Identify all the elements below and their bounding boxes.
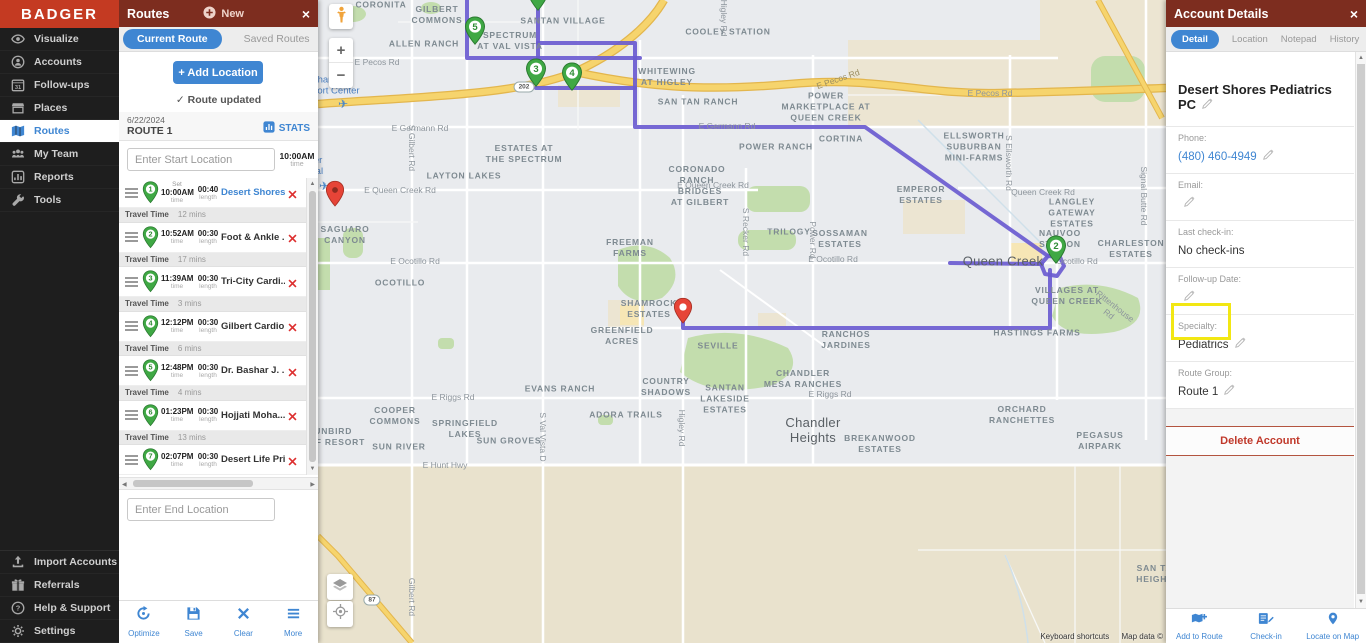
scroll-right-arrow[interactable]: ▶ bbox=[310, 481, 315, 488]
stop-length: 00:30length bbox=[195, 274, 221, 290]
remove-stop-icon[interactable] bbox=[287, 365, 299, 377]
route-stop-row-6: 601:23PMtime00:30lengthHojjati Moha... bbox=[119, 401, 306, 431]
new-route-button[interactable]: New bbox=[203, 6, 244, 22]
stop-length: 00:30length bbox=[195, 318, 221, 334]
route-stop-row-7: 702:07PMtime00:30lengthDesert Life Pri..… bbox=[119, 445, 306, 475]
sidebar-item-label: Help & Support bbox=[34, 602, 110, 614]
sidebar: BADGER VisualizeAccounts31Follow-upsPlac… bbox=[0, 0, 119, 643]
sidebar-item-referrals[interactable]: Referrals bbox=[0, 574, 119, 597]
my-location-control[interactable] bbox=[327, 601, 353, 627]
account-name: Desert Shores Pediatrics PC bbox=[1166, 52, 1354, 127]
travel-time-row: Travel Time6 mins bbox=[119, 342, 306, 357]
remove-stop-icon[interactable] bbox=[287, 454, 299, 466]
sidebar-item-tools[interactable]: Tools bbox=[0, 189, 119, 212]
stop-pin-icon: 3 bbox=[142, 270, 159, 293]
route-info-band: 6/22/2024 ROUTE 1 STATS bbox=[119, 112, 318, 141]
stop-account-link[interactable]: Gilbert Cardio... bbox=[221, 321, 285, 332]
sidebar-item-label: Settings bbox=[34, 625, 75, 637]
drag-handle-icon[interactable] bbox=[125, 408, 138, 422]
scrollbar-thumb[interactable] bbox=[309, 191, 316, 462]
svg-text:6: 6 bbox=[148, 407, 152, 416]
field-label: Specialty: bbox=[1178, 321, 1342, 331]
highway-shield-87: 87 bbox=[363, 595, 380, 606]
drag-handle-icon[interactable] bbox=[125, 364, 138, 378]
field-phone: Phone:(480) 460-4949 bbox=[1166, 127, 1354, 174]
sidebar-nav: VisualizeAccounts31Follow-upsPlacesRoute… bbox=[0, 28, 119, 212]
settings-icon bbox=[11, 624, 25, 638]
map-attribution: Keyboard shortcuts Map data © bbox=[1030, 632, 1163, 641]
stop-list-scrollbar[interactable]: ▲ ▼ bbox=[306, 178, 318, 475]
routes-icon bbox=[11, 124, 25, 138]
reports-icon bbox=[11, 170, 25, 184]
sidebar-item-follow-ups[interactable]: 31Follow-ups bbox=[0, 74, 119, 97]
stop-time: 10:52AMtime bbox=[161, 229, 193, 245]
field-email: Email: bbox=[1166, 174, 1354, 221]
stop-account-link[interactable]: Desert Shores... bbox=[221, 187, 285, 198]
route-updated-status: ✓ Route updated bbox=[119, 94, 318, 106]
field-follow-up-date: Follow-up Date: bbox=[1166, 268, 1354, 315]
sidebar-item-label: Places bbox=[34, 102, 67, 114]
travel-time-row: Travel Time4 mins bbox=[119, 386, 306, 401]
drag-handle-icon[interactable] bbox=[125, 453, 138, 467]
delete-account-button[interactable]: Delete Account bbox=[1166, 426, 1354, 456]
field-value: Pediatrics bbox=[1178, 339, 1229, 351]
route-stop-row-4: 412:12PMtime00:30lengthGilbert Cardio... bbox=[119, 312, 306, 342]
layers-icon bbox=[332, 577, 348, 598]
account-marker[interactable] bbox=[325, 180, 345, 213]
close-account-panel-button[interactable]: × bbox=[1350, 7, 1358, 21]
svg-text:5: 5 bbox=[148, 363, 152, 372]
scroll-down-arrow[interactable]: ▼ bbox=[307, 466, 318, 472]
edit-field-icon[interactable] bbox=[1224, 382, 1235, 393]
locate-on-map-button[interactable]: Locate on Map bbox=[1299, 609, 1366, 643]
scrollbar-thumb[interactable] bbox=[1357, 64, 1365, 594]
drag-handle-icon[interactable] bbox=[125, 319, 138, 333]
import-icon bbox=[11, 555, 25, 569]
account-scrollbar[interactable]: ▲ ▼ bbox=[1355, 52, 1366, 608]
account-toolbar: Add to RouteCheck-inLocate on Map bbox=[1166, 608, 1366, 643]
zoom-in-button[interactable]: + bbox=[329, 38, 353, 63]
zoom-controls: + − bbox=[329, 38, 353, 88]
route-stop-marker-4[interactable]: 4 bbox=[561, 62, 583, 97]
sidebar-footer: Import AccountsReferrals?Help & SupportS… bbox=[0, 550, 119, 643]
sidebar-item-label: Referrals bbox=[34, 579, 80, 591]
sidebar-item-label: Import Accounts bbox=[34, 556, 117, 568]
field-last-check-in: Last check-in:No check-ins bbox=[1166, 221, 1354, 268]
map-data-credit: Map data © bbox=[1122, 632, 1163, 641]
edit-field-icon[interactable] bbox=[1184, 288, 1195, 299]
layers-control[interactable] bbox=[327, 574, 353, 600]
route-stop-row-2: 210:52AMtime00:30lengthFoot & Ankle ... bbox=[119, 223, 306, 253]
more-button[interactable]: More bbox=[268, 601, 318, 643]
routes-toolbar: OptimizeSaveClearMore bbox=[119, 600, 318, 643]
scroll-left-arrow[interactable]: ◀ bbox=[122, 481, 127, 488]
plus-circle-icon bbox=[203, 6, 216, 22]
drag-handle-icon[interactable] bbox=[125, 275, 138, 289]
remove-stop-icon[interactable] bbox=[287, 409, 299, 421]
team-icon bbox=[11, 147, 25, 161]
stop-pin-icon: 5 bbox=[142, 359, 159, 382]
tab-saved-routes[interactable]: Saved Routes bbox=[244, 33, 310, 45]
selected-account-marker[interactable] bbox=[673, 297, 693, 330]
stop-account-link[interactable]: Tri-City Cardi... bbox=[221, 276, 285, 287]
clear-button[interactable]: Clear bbox=[219, 601, 269, 643]
followups-icon: 31 bbox=[11, 78, 25, 92]
stop-account-link[interactable]: Foot & Ankle ... bbox=[221, 232, 285, 243]
stats-button[interactable]: STATS bbox=[263, 121, 310, 136]
field-route-group: Route Group:Route 1 bbox=[1166, 362, 1354, 409]
route-stop-marker-5[interactable]: 5 bbox=[464, 16, 486, 51]
add-location-button[interactable]: + Add Location bbox=[173, 61, 263, 84]
tab-detail[interactable]: Detail bbox=[1171, 30, 1219, 49]
svg-text:2: 2 bbox=[148, 229, 152, 238]
sidebar-item-label: Visualize bbox=[34, 33, 79, 45]
close-routes-panel-button[interactable]: × bbox=[302, 7, 310, 21]
edit-field-icon[interactable] bbox=[1235, 335, 1246, 346]
addroute-icon bbox=[1191, 612, 1207, 630]
field-label: Phone: bbox=[1178, 133, 1342, 143]
tab-notepad[interactable]: Notepad bbox=[1281, 34, 1317, 45]
scroll-up-arrow[interactable]: ▲ bbox=[1356, 55, 1366, 61]
sidebar-item-label: Accounts bbox=[34, 56, 82, 68]
sidebar-item-label: Tools bbox=[34, 194, 61, 206]
add-to-route-button[interactable]: Add to Route bbox=[1166, 609, 1233, 643]
routes-panel: Routes New × Current RouteSaved Routes +… bbox=[119, 0, 318, 643]
stop-time: 12:12PMtime bbox=[161, 318, 193, 334]
field-value[interactable]: (480) 460-4949 bbox=[1178, 151, 1257, 163]
sidebar-item-reports[interactable]: Reports bbox=[0, 166, 119, 189]
routes-panel-header: Routes New × bbox=[119, 0, 318, 27]
scroll-down-arrow[interactable]: ▼ bbox=[1356, 599, 1366, 605]
field-label: Follow-up Date: bbox=[1178, 274, 1342, 284]
remove-stop-icon[interactable] bbox=[287, 231, 299, 243]
svg-text:?: ? bbox=[16, 604, 21, 613]
start-time: 10:00AM time bbox=[279, 151, 315, 168]
route-stop-row-5: 512:48PMtime00:30lengthDr. Bashar J. ... bbox=[119, 356, 306, 386]
tab-location[interactable]: Location bbox=[1232, 34, 1268, 45]
sidebar-item-label: Reports bbox=[34, 171, 74, 183]
delete-section: Delete Account bbox=[1166, 409, 1354, 456]
stop-length: 00:30length bbox=[195, 452, 221, 468]
stop-list-hscrollbar[interactable]: ◀ ▶ bbox=[119, 477, 318, 490]
svg-text:2: 2 bbox=[1053, 241, 1058, 252]
stop-time: 01:23PMtime bbox=[161, 407, 193, 423]
account-content: Desert Shores Pediatrics PC Phone:(480) … bbox=[1166, 52, 1354, 608]
remove-stop-icon[interactable] bbox=[287, 276, 299, 288]
sidebar-item-label: Follow-ups bbox=[34, 79, 89, 91]
edit-name-icon[interactable] bbox=[1202, 97, 1213, 108]
account-fields: Phone:(480) 460-4949Email:Last check-in:… bbox=[1166, 127, 1354, 409]
travel-time-row: Travel Time17 mins bbox=[119, 253, 306, 268]
account-panel-title: Account Details bbox=[1174, 7, 1268, 21]
routes-tabs: Current RouteSaved Routes bbox=[119, 27, 318, 52]
accounts-icon bbox=[11, 55, 25, 69]
route-stop-row-3: 311:39AMtime00:30lengthTri-City Cardi... bbox=[119, 267, 306, 297]
stop-account-link[interactable]: Hojjati Moha... bbox=[221, 410, 285, 421]
sidebar-item-accounts[interactable]: Accounts bbox=[0, 51, 119, 74]
stop-pin-icon: 7 bbox=[142, 448, 159, 471]
route-stop-marker-6[interactable]: 6 bbox=[527, 0, 549, 17]
badger-maps-app: CORONITAGILBERT COMMONSSANTAN VILLAGECOO… bbox=[0, 0, 1366, 643]
stop-pin-icon: 4 bbox=[142, 315, 159, 338]
svg-text:31: 31 bbox=[15, 85, 21, 91]
route-stop-row-1: 1Set10:00AMtime00:40lengthDesert Shores.… bbox=[119, 178, 306, 208]
stop-time: 11:39AMtime bbox=[161, 274, 193, 290]
referrals-icon bbox=[11, 578, 25, 592]
map-canvas[interactable]: CORONITAGILBERT COMMONSSANTAN VILLAGECOO… bbox=[318, 0, 1166, 643]
stats-chart-icon bbox=[263, 121, 275, 136]
target-icon bbox=[333, 604, 348, 624]
travel-time-row: Travel Time12 mins bbox=[119, 208, 306, 223]
account-panel-header: Account Details × bbox=[1166, 0, 1366, 27]
drag-handle-icon[interactable] bbox=[125, 186, 138, 200]
stop-length: 00:40length bbox=[195, 185, 221, 201]
sidebar-item-help-support[interactable]: ?Help & Support bbox=[0, 597, 119, 620]
stop-time: Set10:00AMtime bbox=[161, 181, 193, 204]
route-stop-list: 1Set10:00AMtime00:40lengthDesert Shores.… bbox=[119, 178, 306, 475]
keyboard-shortcuts-link[interactable]: Keyboard shortcuts bbox=[1040, 632, 1109, 641]
field-specialty: Specialty:Pediatrics bbox=[1166, 315, 1354, 362]
stop-length: 00:30length bbox=[195, 363, 221, 379]
sidebar-item-visualize[interactable]: Visualize bbox=[0, 28, 119, 51]
route-stop-marker-2[interactable]: 2 bbox=[1045, 235, 1067, 270]
sidebar-item-settings[interactable]: Settings bbox=[0, 620, 119, 643]
check-in-button[interactable]: Check-in bbox=[1233, 609, 1300, 643]
field-value: No check-ins bbox=[1178, 245, 1244, 257]
end-location-input[interactable] bbox=[127, 498, 275, 521]
sidebar-item-label: My Team bbox=[34, 148, 78, 160]
sidebar-item-places[interactable]: Places bbox=[0, 97, 119, 120]
svg-text:3: 3 bbox=[533, 64, 538, 75]
account-details-panel: Account Details × DetailLocationNotepadH… bbox=[1166, 0, 1366, 643]
badger-logo: BADGER bbox=[0, 0, 119, 28]
routes-panel-title: Routes bbox=[127, 7, 169, 21]
stop-account-link[interactable]: Dr. Bashar J. ... bbox=[221, 365, 285, 376]
remove-stop-icon[interactable] bbox=[287, 320, 299, 332]
panel-filler bbox=[1166, 456, 1354, 608]
stop-time: 02:07PMtime bbox=[161, 452, 193, 468]
stop-length: 00:30length bbox=[195, 407, 221, 423]
more-icon bbox=[286, 606, 301, 626]
scroll-up-arrow[interactable]: ▲ bbox=[307, 181, 318, 187]
pegman-icon bbox=[334, 6, 349, 28]
stop-pin-icon: 6 bbox=[142, 404, 159, 427]
eye-icon bbox=[11, 32, 25, 46]
tab-current-route[interactable]: Current Route bbox=[123, 29, 222, 49]
svg-text:4: 4 bbox=[148, 318, 152, 327]
travel-time-row: Travel Time3 mins bbox=[119, 297, 306, 312]
field-label: Route Group: bbox=[1178, 368, 1342, 378]
optimize-icon bbox=[136, 606, 151, 626]
airport-icon: ✈ bbox=[338, 97, 348, 111]
svg-text:4: 4 bbox=[569, 68, 575, 79]
sidebar-item-routes[interactable]: Routes bbox=[0, 120, 119, 143]
field-label: Last check-in: bbox=[1178, 227, 1342, 237]
account-tabs: DetailLocationNotepadHistory bbox=[1166, 27, 1366, 52]
places-icon bbox=[11, 101, 25, 115]
route-polyline bbox=[318, 0, 1166, 643]
stop-pin-icon: 1 bbox=[142, 181, 159, 204]
hscrollbar-thumb[interactable] bbox=[133, 480, 253, 487]
checkin-icon bbox=[1258, 612, 1274, 630]
zoom-out-button[interactable]: − bbox=[329, 63, 353, 88]
route-stop-marker-3[interactable]: 3 bbox=[525, 58, 547, 93]
tools-icon bbox=[11, 193, 25, 207]
save-icon bbox=[186, 606, 201, 626]
field-label: Email: bbox=[1178, 180, 1342, 190]
stop-length: 00:30length bbox=[195, 229, 221, 245]
svg-text:1: 1 bbox=[148, 185, 152, 194]
svg-text:3: 3 bbox=[148, 274, 152, 283]
optimize-button[interactable]: Optimize bbox=[119, 601, 169, 643]
help-icon: ? bbox=[11, 601, 25, 615]
edit-field-icon[interactable] bbox=[1184, 194, 1195, 205]
tab-history[interactable]: History bbox=[1330, 34, 1360, 45]
pegman-control[interactable] bbox=[329, 4, 353, 29]
sidebar-item-label: Routes bbox=[34, 125, 70, 137]
travel-time-row: Travel Time13 mins bbox=[119, 431, 306, 446]
save-button[interactable]: Save bbox=[169, 601, 219, 643]
start-location-input[interactable] bbox=[127, 148, 275, 171]
locate-icon bbox=[1325, 612, 1341, 630]
field-value: Route 1 bbox=[1178, 386, 1218, 398]
stop-pin-icon: 2 bbox=[142, 226, 159, 249]
sidebar-item-my-team[interactable]: My Team bbox=[0, 143, 119, 166]
drag-handle-icon[interactable] bbox=[125, 230, 138, 244]
svg-text:7: 7 bbox=[148, 452, 152, 461]
sidebar-item-import-accounts[interactable]: Import Accounts bbox=[0, 551, 119, 574]
edit-field-icon[interactable] bbox=[1263, 147, 1274, 158]
stop-time: 12:48PMtime bbox=[161, 363, 193, 379]
remove-stop-icon[interactable] bbox=[287, 187, 299, 199]
clear-icon bbox=[236, 606, 251, 626]
svg-text:5: 5 bbox=[472, 22, 478, 33]
stop-account-link[interactable]: Desert Life Pri... bbox=[221, 454, 285, 465]
